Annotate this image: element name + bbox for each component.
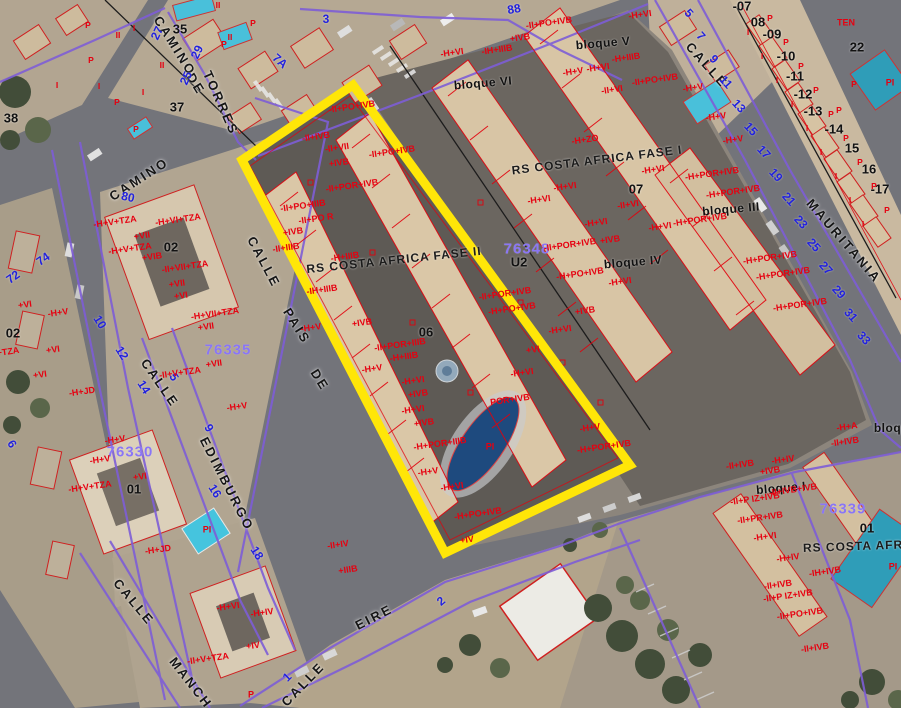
aerial-imagery: [0, 0, 901, 708]
cadastral-map-viewport[interactable]: CAMINODETORRESCAMINOCALLEPAISDECALLEEDIM…: [0, 0, 901, 708]
pool-top-left-b: [128, 117, 153, 139]
pool-22: [850, 50, 901, 110]
